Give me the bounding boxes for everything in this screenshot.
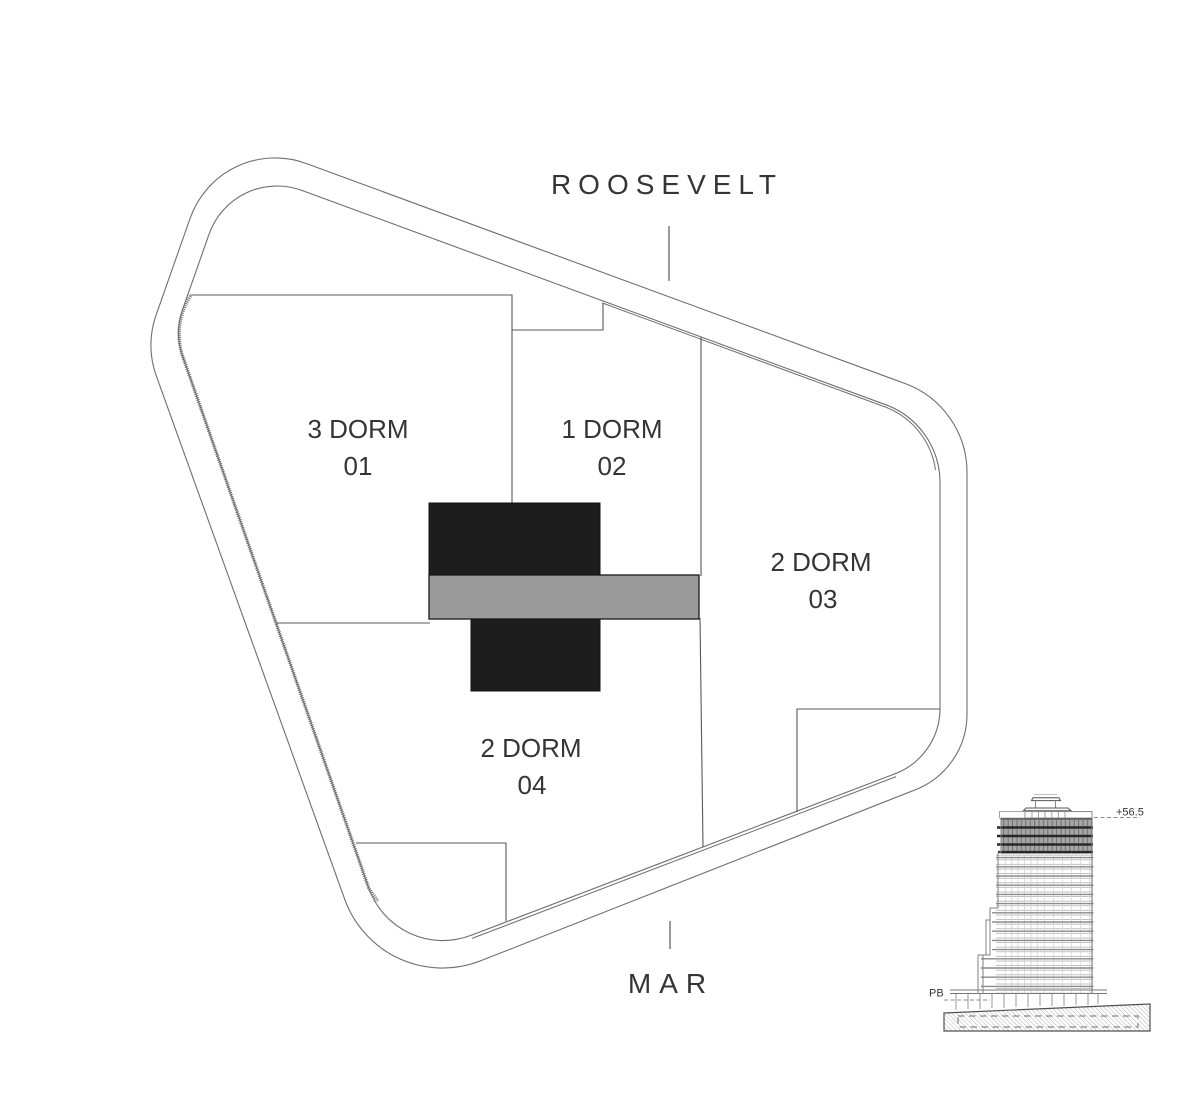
svg-text:MAR: MAR [628, 968, 714, 999]
svg-text:04: 04 [518, 770, 547, 800]
svg-text:+56.5: +56.5 [1116, 807, 1144, 819]
svg-text:02: 02 [598, 451, 627, 481]
svg-text:1 DORM: 1 DORM [561, 414, 662, 444]
svg-text:3 DORM: 3 DORM [307, 414, 408, 444]
svg-text:03: 03 [809, 584, 838, 614]
svg-text:ROOSEVELT: ROOSEVELT [551, 169, 783, 200]
svg-text:PB: PB [929, 988, 944, 1000]
svg-text:01: 01 [344, 451, 373, 481]
svg-text:2 DORM: 2 DORM [480, 733, 581, 763]
svg-text:2 DORM: 2 DORM [770, 547, 871, 577]
